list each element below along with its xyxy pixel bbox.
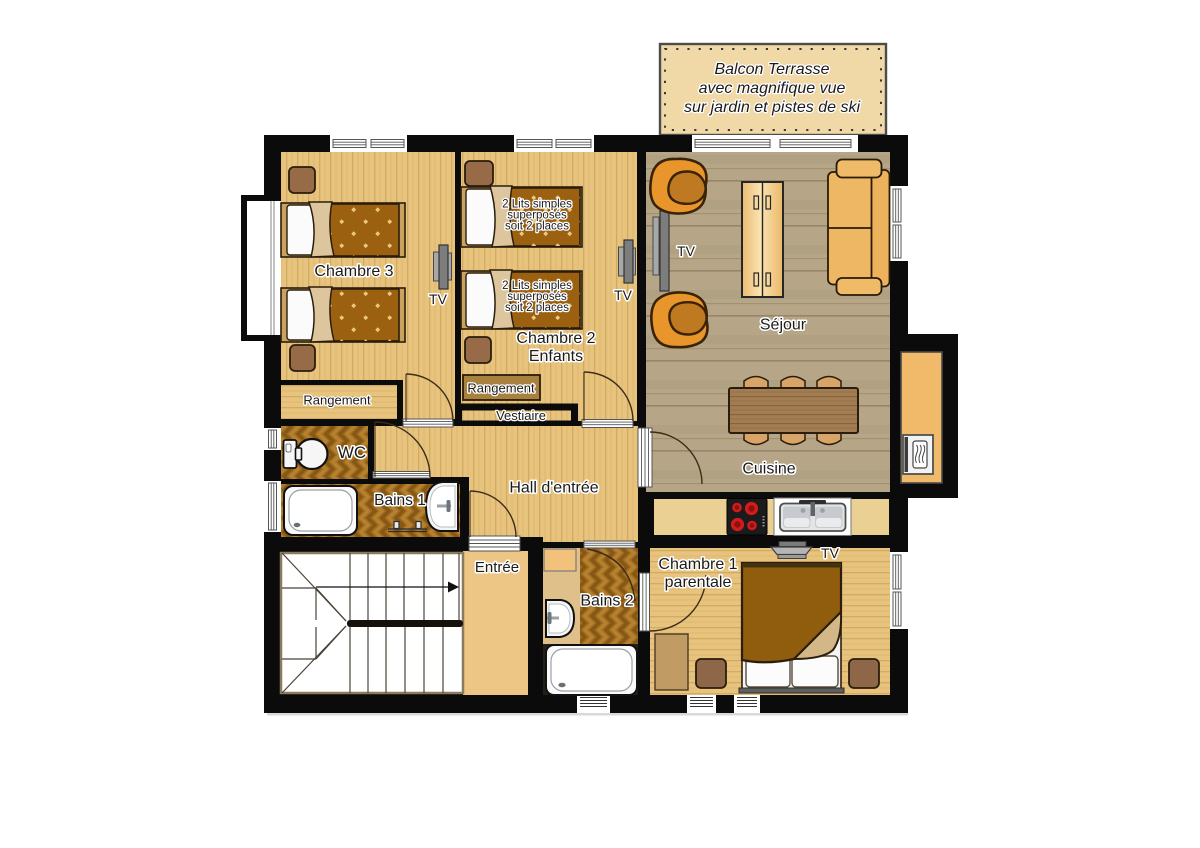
svg-text:soit 2 places: soit 2 places	[505, 302, 569, 314]
svg-text:Rangement: Rangement	[467, 381, 535, 396]
svg-text:sur jardin et pistes de ski: sur jardin et pistes de ski	[684, 99, 861, 116]
svg-text:avec magnifique vue: avec magnifique vue	[699, 80, 846, 97]
svg-text:Balcon Terrasse: Balcon Terrasse	[714, 61, 829, 78]
svg-text:Rangement: Rangement	[303, 393, 371, 408]
svg-text:TV: TV	[614, 287, 633, 303]
svg-text:TV: TV	[429, 291, 448, 307]
svg-text:Chambre 1: Chambre 1	[658, 556, 737, 573]
svg-text:Chambre 2: Chambre 2	[516, 330, 595, 347]
svg-text:Vestiaire: Vestiaire	[496, 408, 546, 423]
svg-text:Chambre 3: Chambre 3	[314, 263, 393, 280]
svg-text:Bains 1: Bains 1	[374, 492, 426, 509]
svg-text:WC: WC	[338, 443, 366, 462]
svg-text:TV: TV	[677, 243, 696, 259]
svg-text:Séjour: Séjour	[760, 317, 807, 334]
svg-text:Entrée: Entrée	[475, 559, 519, 576]
svg-text:soit 2 places: soit 2 places	[505, 221, 569, 233]
svg-text:TV: TV	[821, 545, 840, 561]
svg-text:Hall d'entrée: Hall d'entrée	[509, 480, 598, 497]
svg-text:Bains 2: Bains 2	[580, 593, 633, 610]
svg-text:Enfants: Enfants	[529, 348, 583, 365]
svg-text:Cuisine: Cuisine	[742, 461, 795, 478]
svg-text:parentale: parentale	[665, 574, 732, 591]
